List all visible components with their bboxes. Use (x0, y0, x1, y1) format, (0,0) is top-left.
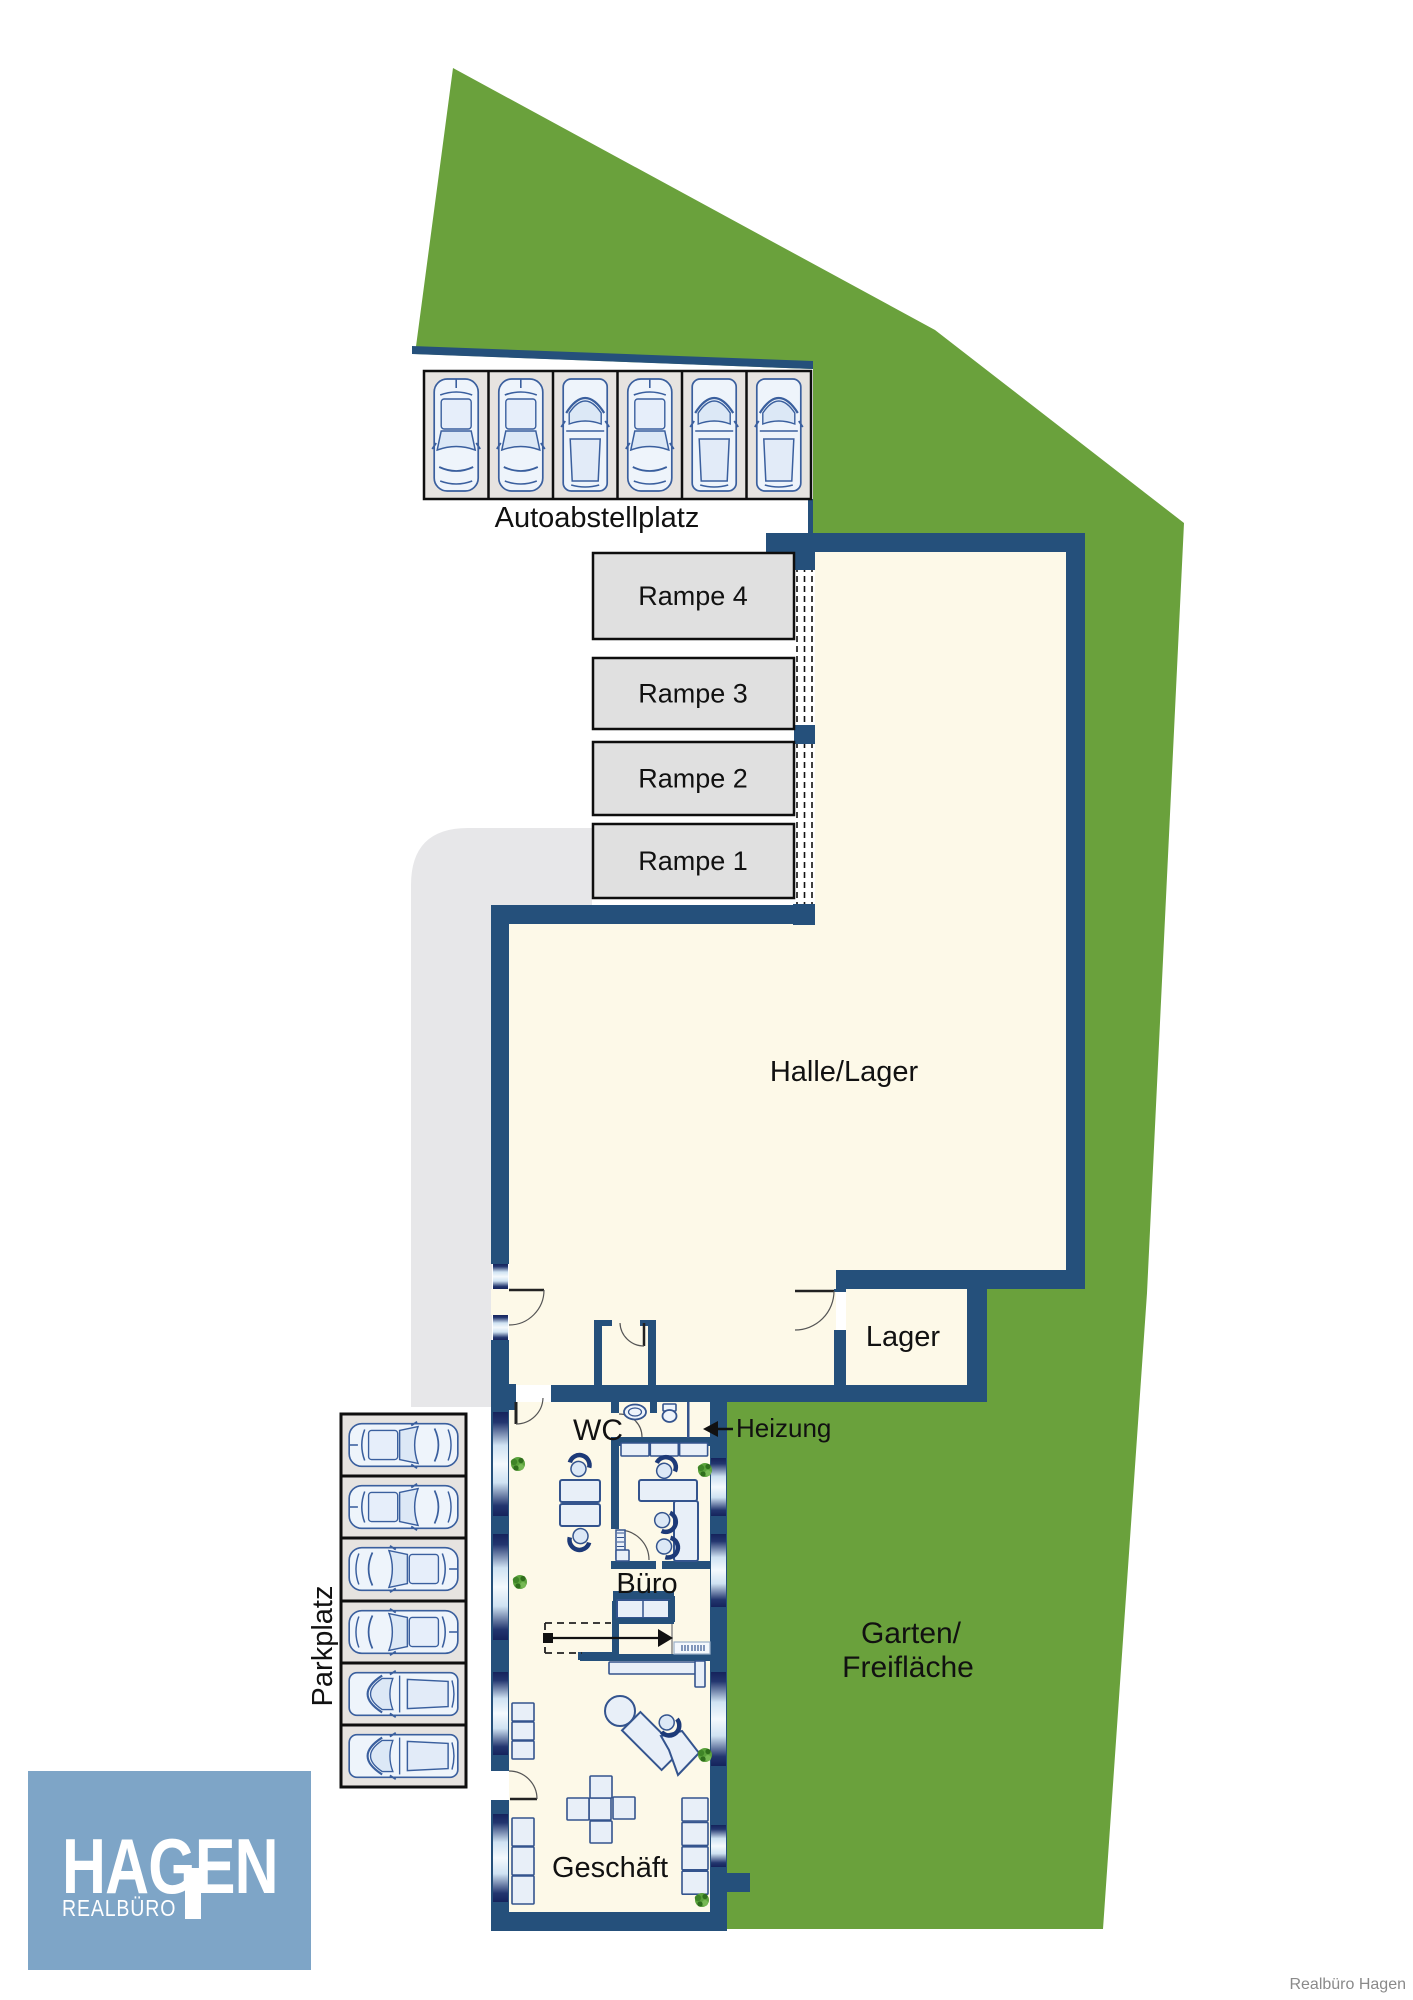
svg-text:Halle/Lager: Halle/Lager (770, 1056, 919, 1088)
svg-text:Garten/: Garten/ (861, 1617, 962, 1650)
svg-text:Geschäft: Geschäft (552, 1852, 668, 1884)
svg-text:WC: WC (573, 1414, 623, 1447)
svg-text:Freifläche: Freifläche (842, 1651, 974, 1684)
svg-text:Realbüro Hagen: Realbüro Hagen (1289, 1976, 1406, 1993)
svg-text:Lager: Lager (866, 1321, 941, 1353)
svg-text:Parkplatz: Parkplatz (307, 1586, 339, 1707)
svg-text:Autoabstellplatz: Autoabstellplatz (495, 502, 700, 534)
svg-text:Büro: Büro (616, 1568, 677, 1600)
svg-text:Heizung: Heizung (736, 1413, 831, 1443)
svg-text:REALBÜRO: REALBÜRO (62, 1896, 176, 1922)
